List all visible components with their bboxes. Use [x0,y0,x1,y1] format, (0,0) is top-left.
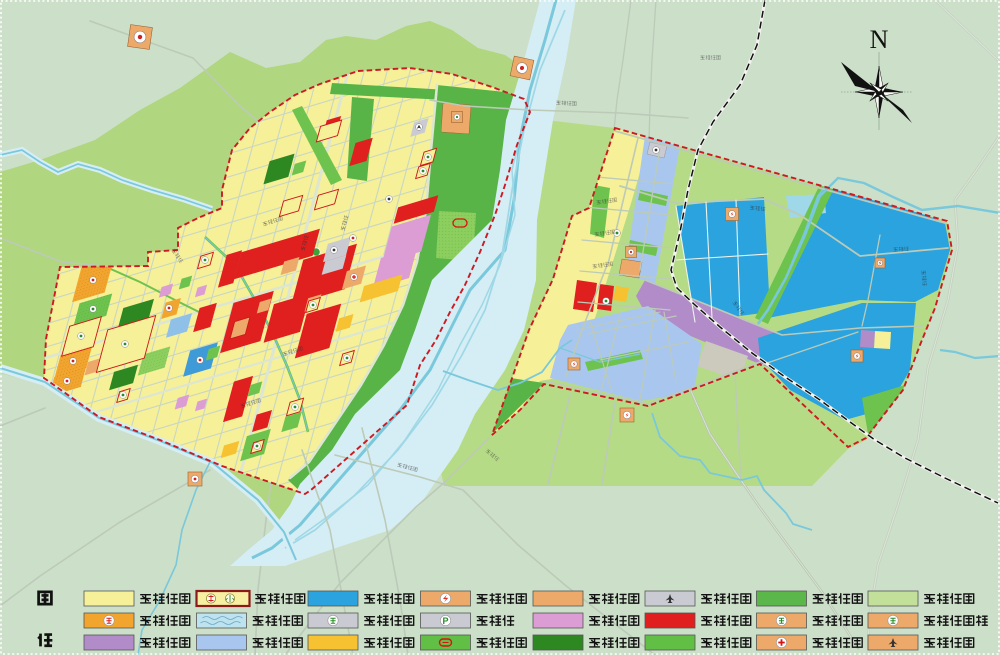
svg-text:N: N [870,25,889,54]
svg-text:P: P [442,616,448,626]
